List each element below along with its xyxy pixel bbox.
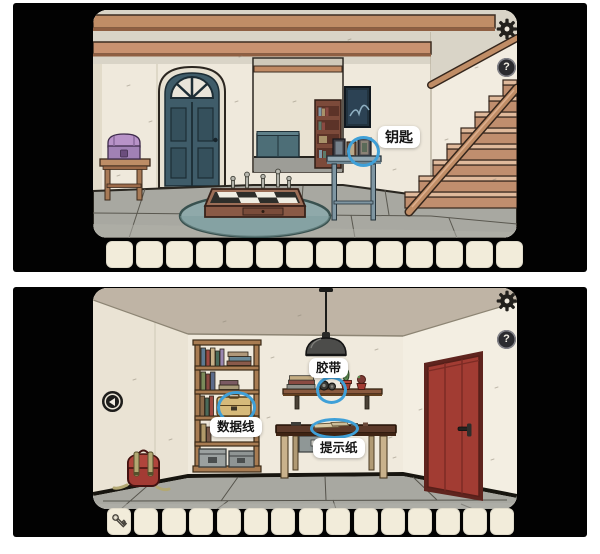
inventory-slot-key[interactable] <box>107 508 131 535</box>
hallway-room-illustration <box>93 10 517 238</box>
inventory-slot-empty[interactable] <box>466 241 493 268</box>
left-triangle <box>109 398 115 406</box>
teal-cabinet <box>257 132 299 158</box>
inventory-slot-empty[interactable] <box>166 241 193 268</box>
inventory-slot-empty[interactable] <box>490 508 514 535</box>
inventory-slot-empty[interactable] <box>408 508 432 535</box>
screenshot-panel-lower: ? 胶带 数据线 提示纸 <box>13 287 587 537</box>
inventory-bar <box>107 508 514 535</box>
plant-pot <box>357 376 366 390</box>
inventory-slot-empty[interactable] <box>436 241 463 268</box>
annotation-cable: 数据线 <box>210 417 262 437</box>
room-scene-hallway[interactable]: ? 钥匙 <box>93 10 517 238</box>
inventory-slot-empty[interactable] <box>217 508 241 535</box>
inventory-slot-empty[interactable] <box>244 508 268 535</box>
inventory-slot-empty[interactable] <box>106 241 133 268</box>
inventory-slot-empty[interactable] <box>463 508 487 535</box>
inventory-slot-empty[interactable] <box>162 508 186 535</box>
arched-door[interactable] <box>159 67 225 188</box>
annotation-tape: 胶带 <box>309 358 348 378</box>
purple-chest[interactable] <box>108 134 140 159</box>
inventory-slot-empty[interactable] <box>136 241 163 268</box>
room-scene-basement[interactable]: ? 胶带 数据线 提示纸 <box>93 288 517 509</box>
inventory-bar <box>106 241 523 268</box>
wall-painting <box>345 87 370 127</box>
inventory-slot-empty[interactable] <box>496 241 523 268</box>
inventory-slot-empty[interactable] <box>376 241 403 268</box>
inventory-slot-empty[interactable] <box>134 508 158 535</box>
inventory-slot-empty[interactable] <box>346 241 373 268</box>
inventory-slot-empty[interactable] <box>326 508 350 535</box>
help-icon[interactable]: ? <box>497 58 516 77</box>
settings-gear-icon[interactable] <box>496 18 517 40</box>
storage-boxes <box>199 449 254 467</box>
gear-icon <box>496 290 517 312</box>
annotation-paper: 提示纸 <box>313 438 365 458</box>
back-arrow-icon[interactable] <box>102 391 123 412</box>
settings-gear-icon[interactable] <box>496 290 517 312</box>
inventory-slot-empty[interactable] <box>271 508 295 535</box>
inventory-slot-empty[interactable] <box>381 508 405 535</box>
help-icon[interactable]: ? <box>497 330 516 349</box>
inventory-slot-empty[interactable] <box>256 241 283 268</box>
key-icon <box>109 511 130 532</box>
highlight-circle-paper[interactable] <box>310 418 359 439</box>
inventory-slot-empty[interactable] <box>316 241 343 268</box>
inventory-slot-empty[interactable] <box>226 241 253 268</box>
highlight-circle-tape[interactable] <box>316 376 347 404</box>
inventory-slot-empty[interactable] <box>196 241 223 268</box>
inventory-slot-empty[interactable] <box>286 241 313 268</box>
red-door[interactable] <box>424 351 483 501</box>
inventory-slot-empty[interactable] <box>406 241 433 268</box>
inventory-slot-empty[interactable] <box>354 508 378 535</box>
inventory-slot-empty[interactable] <box>436 508 460 535</box>
gear-icon <box>496 18 517 40</box>
hallway-opening <box>253 58 343 172</box>
inventory-slot-empty[interactable] <box>189 508 213 535</box>
screenshot-panel-upper: ? 钥匙 <box>13 3 587 272</box>
basement-room-illustration <box>93 288 517 509</box>
annotation-key: 钥匙 <box>378 126 420 148</box>
inventory-slot-empty[interactable] <box>299 508 323 535</box>
highlight-circle-key[interactable] <box>347 136 380 167</box>
